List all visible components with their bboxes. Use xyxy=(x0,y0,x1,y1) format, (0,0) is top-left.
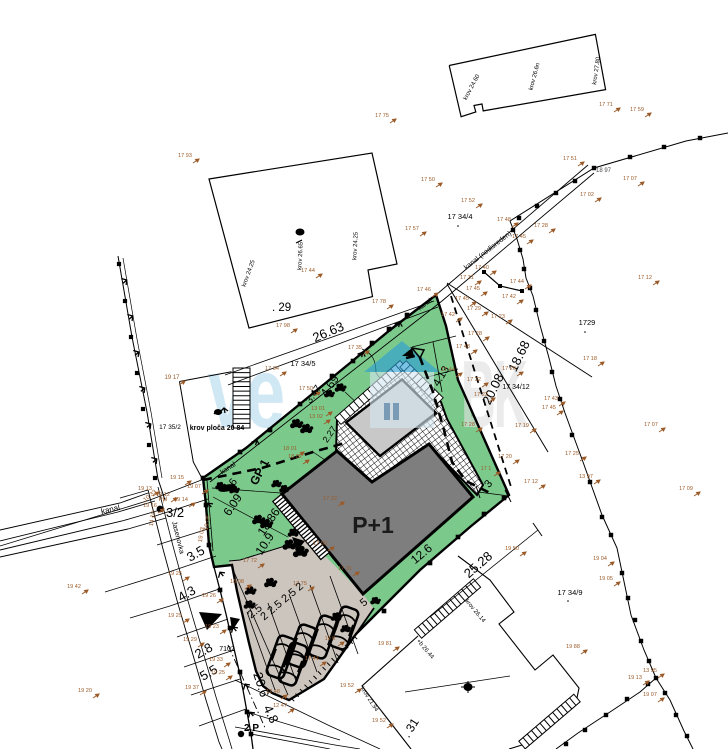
svg-text:17 22: 17 22 xyxy=(323,496,337,502)
svg-text:17 28: 17 28 xyxy=(461,422,475,428)
svg-text:17 28: 17 28 xyxy=(468,331,482,337)
svg-text:17 52: 17 52 xyxy=(461,198,475,204)
svg-text:17 34: 17 34 xyxy=(265,366,279,372)
svg-text:17 20: 17 20 xyxy=(498,454,512,460)
svg-text:17 34/12: 17 34/12 xyxy=(502,384,529,391)
svg-text:19 50: 19 50 xyxy=(505,546,519,552)
svg-text:19 15: 19 15 xyxy=(170,475,184,481)
svg-text:19 25: 19 25 xyxy=(168,571,182,577)
svg-text:19 20: 19 20 xyxy=(78,688,92,694)
svg-text:1729: 1729 xyxy=(579,318,596,327)
svg-text:17 34/5: 17 34/5 xyxy=(290,359,315,368)
svg-text:17 45: 17 45 xyxy=(512,234,526,240)
svg-text:19 26: 19 26 xyxy=(202,593,216,599)
svg-text:12 47: 12 47 xyxy=(273,703,287,709)
svg-text:17 22: 17 22 xyxy=(474,392,488,398)
svg-text:17 35/2: 17 35/2 xyxy=(159,424,181,431)
svg-text:17 50: 17 50 xyxy=(313,541,327,547)
svg-text:17 12: 17 12 xyxy=(638,275,652,281)
svg-text:18 08: 18 08 xyxy=(230,579,244,585)
svg-text:19 29: 19 29 xyxy=(183,637,197,643)
svg-text:17 42: 17 42 xyxy=(441,312,455,318)
svg-text:17 41: 17 41 xyxy=(305,656,319,662)
svg-text:17 32: 17 32 xyxy=(467,377,481,383)
svg-text:17 57: 17 57 xyxy=(405,226,419,232)
svg-text:17 26: 17 26 xyxy=(502,366,516,372)
svg-text:17 93: 17 93 xyxy=(178,153,192,159)
svg-text:17 46: 17 46 xyxy=(417,287,431,293)
svg-text:17 48: 17 48 xyxy=(456,344,470,350)
svg-text:17 51: 17 51 xyxy=(563,156,577,162)
svg-text:17 25: 17 25 xyxy=(565,451,579,457)
svg-text:17 45: 17 45 xyxy=(466,286,480,292)
svg-text:17 59: 17 59 xyxy=(630,107,644,113)
svg-text:17 50: 17 50 xyxy=(421,177,435,183)
svg-text:19 42: 19 42 xyxy=(67,584,81,590)
svg-text:19 17: 19 17 xyxy=(164,375,180,381)
svg-text:19 13: 19 13 xyxy=(138,486,152,492)
svg-text:19 16: 19 16 xyxy=(143,503,157,509)
svg-text:13 02: 13 02 xyxy=(309,414,323,420)
svg-text:12 48: 12 48 xyxy=(266,689,280,695)
svg-text:19 33: 19 33 xyxy=(209,657,223,663)
svg-text:17 42: 17 42 xyxy=(502,294,516,300)
svg-text:19 13: 19 13 xyxy=(628,675,642,681)
svg-text:17 34/4: 17 34/4 xyxy=(447,212,472,221)
svg-text:17 45: 17 45 xyxy=(455,296,469,302)
svg-text:19 88: 19 88 xyxy=(566,644,580,650)
svg-text:17 40: 17 40 xyxy=(475,265,489,271)
svg-text:19 81: 19 81 xyxy=(378,641,392,647)
svg-text:13 97: 13 97 xyxy=(579,474,593,480)
svg-text:17 50: 17 50 xyxy=(299,386,313,392)
svg-text:17 48: 17 48 xyxy=(497,217,511,223)
svg-text:17 02: 17 02 xyxy=(580,192,594,198)
svg-text:18 97: 18 97 xyxy=(596,168,612,174)
svg-text:2 P: 2 P xyxy=(244,723,259,734)
svg-text:19 07: 19 07 xyxy=(187,484,201,490)
svg-text:17 29: 17 29 xyxy=(467,306,481,312)
svg-text:17 07: 17 07 xyxy=(644,422,658,428)
svg-text:3/2: 3/2 xyxy=(166,505,184,520)
svg-text:7102: 7102 xyxy=(219,646,235,653)
svg-text:18 02: 18 02 xyxy=(288,454,302,460)
svg-text:19 0: 19 0 xyxy=(325,636,336,642)
svg-text:P+1: P+1 xyxy=(352,512,394,538)
svg-text:17 34/9: 17 34/9 xyxy=(557,588,582,597)
svg-text:krov ploča 20 84: krov ploča 20 84 xyxy=(190,425,245,432)
svg-text:19 52: 19 52 xyxy=(372,718,386,724)
svg-text:17 31: 17 31 xyxy=(338,566,352,572)
svg-text:17 71: 17 71 xyxy=(599,102,613,108)
svg-text:19 14: 19 14 xyxy=(174,497,188,503)
svg-text:17 28: 17 28 xyxy=(534,223,548,229)
svg-text:17 19: 17 19 xyxy=(515,423,529,429)
svg-text:17 78: 17 78 xyxy=(372,299,386,305)
svg-text:19 37: 19 37 xyxy=(185,685,199,691)
svg-text:17 45: 17 45 xyxy=(542,405,556,411)
svg-text:17 18: 17 18 xyxy=(583,356,597,362)
svg-text:17 43: 17 43 xyxy=(544,396,558,402)
svg-text:19 07: 19 07 xyxy=(643,692,657,698)
svg-text:19 04: 19 04 xyxy=(593,556,607,562)
svg-text:. 29: . 29 xyxy=(272,302,291,314)
svg-text:19 23: 19 23 xyxy=(205,624,219,630)
svg-text:19 29: 19 29 xyxy=(168,613,182,619)
svg-text:17 44: 17 44 xyxy=(441,367,455,373)
svg-text:17 07: 17 07 xyxy=(623,176,637,182)
svg-text:19 52: 19 52 xyxy=(340,683,354,689)
svg-text:17 75: 17 75 xyxy=(375,113,389,119)
svg-text:19 25: 19 25 xyxy=(211,670,225,676)
svg-text:17 98: 17 98 xyxy=(276,323,290,329)
svg-text:17 44: 17 44 xyxy=(510,279,524,285)
svg-text:18 01: 18 01 xyxy=(283,446,297,452)
svg-text:17 44: 17 44 xyxy=(301,268,315,274)
svg-text:17 09: 17 09 xyxy=(679,486,693,492)
svg-text:13 95: 13 95 xyxy=(643,668,657,674)
svg-text:17 1: 17 1 xyxy=(481,466,492,472)
svg-text:17 23: 17 23 xyxy=(491,314,505,320)
svg-text:17 31: 17 31 xyxy=(460,275,474,281)
svg-text:17 72: 17 72 xyxy=(243,558,257,564)
svg-text:17 35: 17 35 xyxy=(348,345,362,351)
svg-text:17 12: 17 12 xyxy=(524,479,538,485)
svg-text:17 75: 17 75 xyxy=(293,581,307,587)
svg-text:19 12: 19 12 xyxy=(156,492,170,498)
svg-text:13 01: 13 01 xyxy=(311,406,325,412)
svg-text:19 05: 19 05 xyxy=(599,576,613,582)
